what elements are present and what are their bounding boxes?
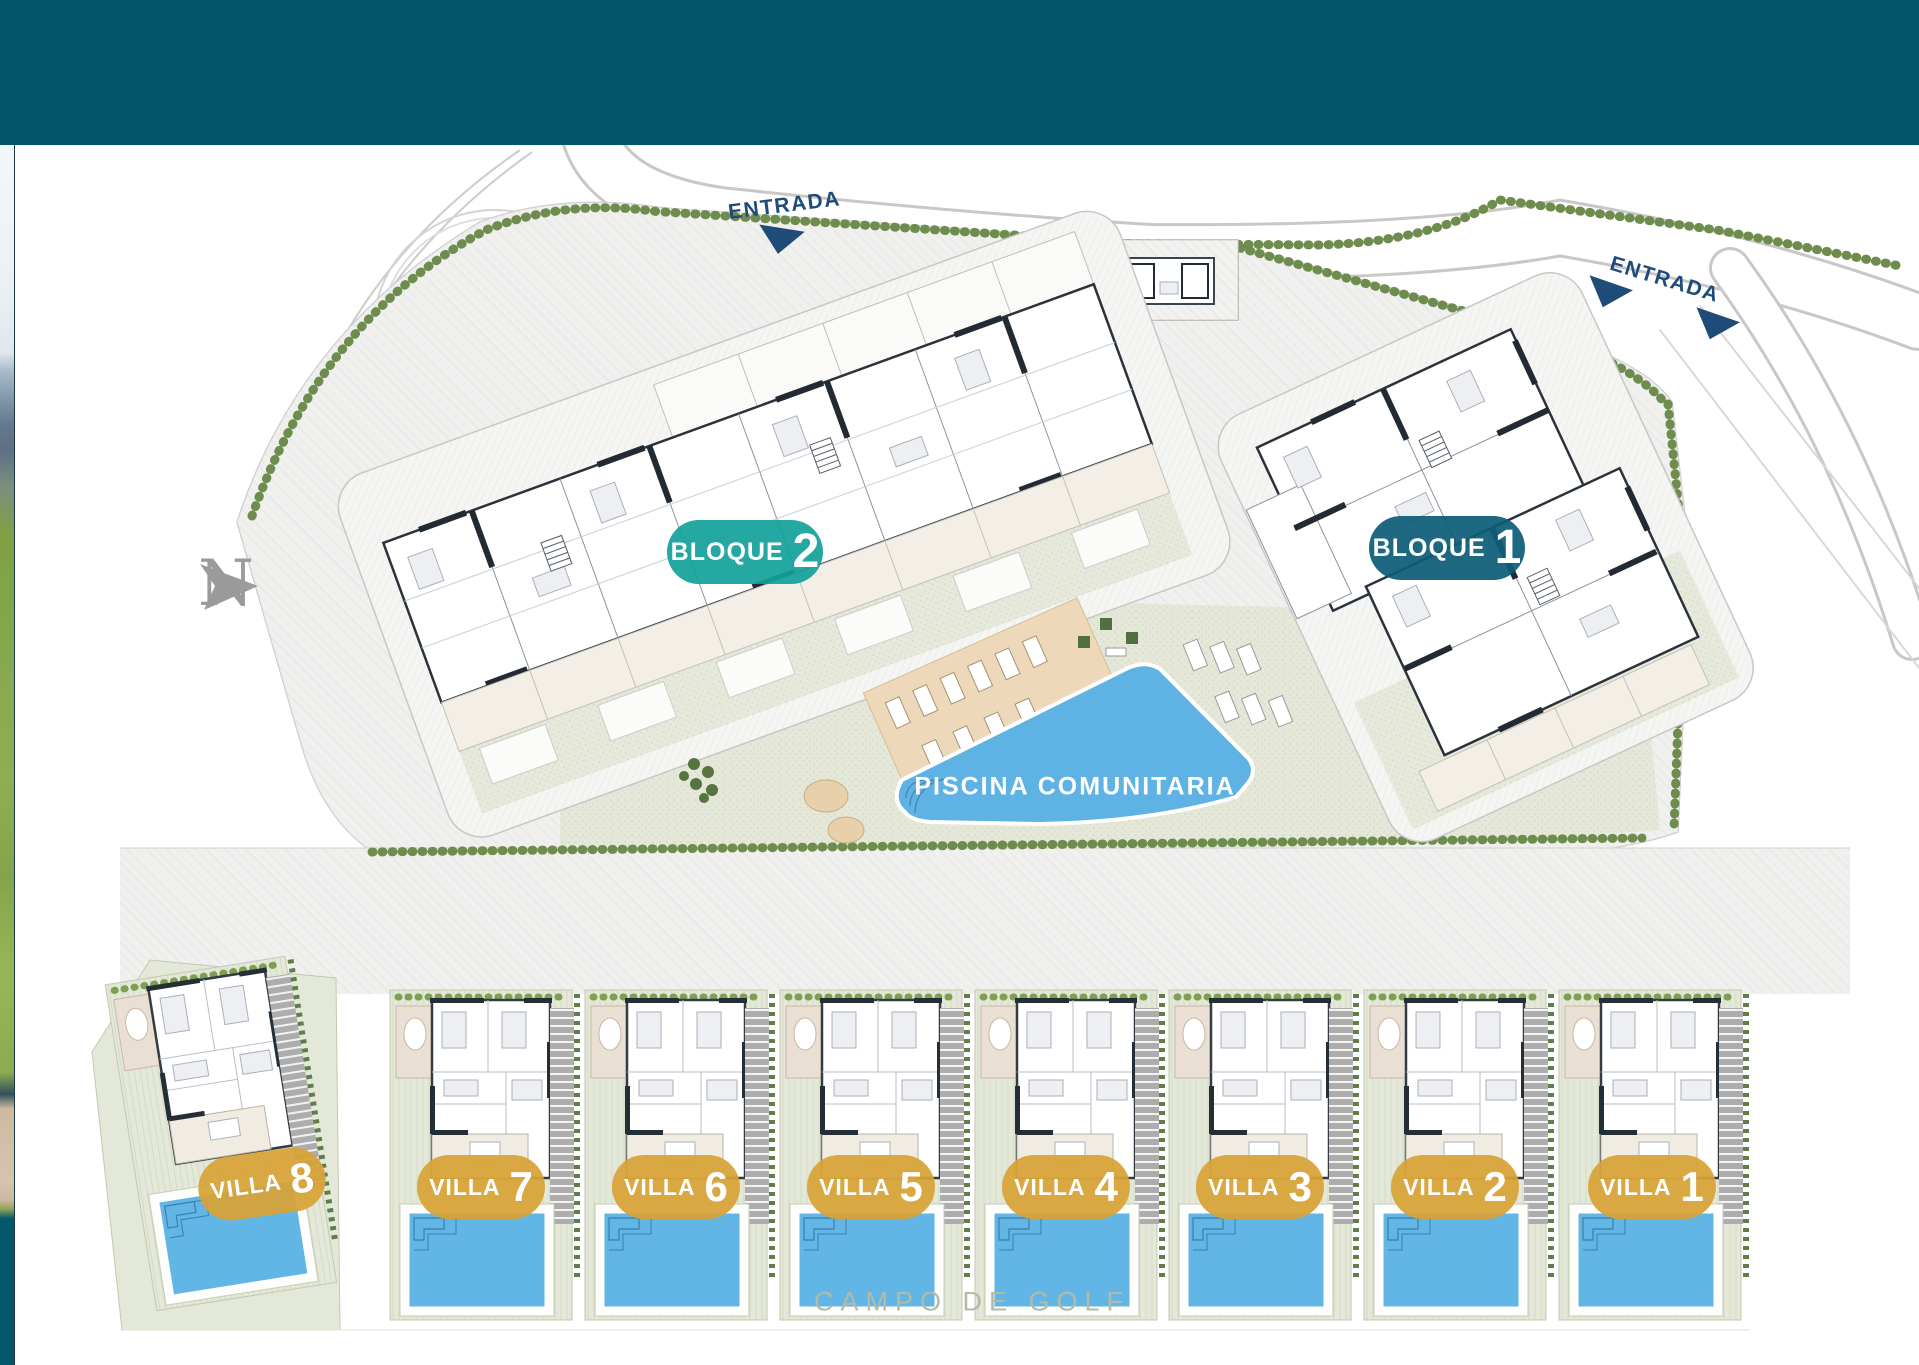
villa-1-label: VILLA xyxy=(1600,1174,1671,1201)
bloque-2-number: 2 xyxy=(793,528,820,576)
villa-5-label: VILLA xyxy=(819,1174,890,1201)
villa-6-badge[interactable]: VILLA 6 xyxy=(612,1155,740,1219)
villa-7-number: 7 xyxy=(510,1166,533,1208)
bloque-1-badge[interactable]: BLOQUE 1 xyxy=(1369,516,1525,580)
villa-3-badge[interactable]: VILLA 3 xyxy=(1196,1155,1324,1219)
villa-3-number: 3 xyxy=(1289,1166,1312,1208)
villa-8-number: 8 xyxy=(287,1156,316,1201)
villa-5-number: 5 xyxy=(900,1166,923,1208)
lower-corridor xyxy=(120,848,1850,994)
villa-7-label: VILLA xyxy=(429,1174,500,1201)
villa-4-number: 4 xyxy=(1095,1166,1118,1208)
communal-pool-label: PISCINA COMUNITARIA xyxy=(914,773,1235,802)
villa-8-label: VILLA xyxy=(209,1168,284,1205)
north-arrow-icon xyxy=(198,552,260,616)
bloque-1-label: BLOQUE xyxy=(1373,534,1486,563)
villa-4-label: VILLA xyxy=(1014,1174,1085,1201)
site-plan-page: ENTRADA ENTRADA N BLOQUE 2 BLOQUE 1 PISC… xyxy=(0,0,1919,1365)
golf-course-label: CAMPO DE GOLF xyxy=(814,1287,1130,1318)
villa-6-number: 6 xyxy=(705,1166,728,1208)
villa-6-label: VILLA xyxy=(624,1174,695,1201)
villa-7-badge[interactable]: VILLA 7 xyxy=(417,1155,545,1219)
villa-plots xyxy=(92,956,1746,1330)
villa-1-badge[interactable]: VILLA 1 xyxy=(1588,1155,1716,1219)
bloque-1-number: 1 xyxy=(1495,524,1522,572)
bottom-margin xyxy=(15,1330,1919,1365)
villa-2-number: 2 xyxy=(1484,1166,1507,1208)
villa-2-badge[interactable]: VILLA 2 xyxy=(1391,1155,1519,1219)
villa-5-badge[interactable]: VILLA 5 xyxy=(807,1155,935,1219)
north-compass: N xyxy=(198,552,254,616)
top-banner xyxy=(0,0,1919,145)
villa-4-badge[interactable]: VILLA 4 xyxy=(1002,1155,1130,1219)
villa-1-number: 1 xyxy=(1681,1166,1704,1208)
bloque-2-badge[interactable]: BLOQUE 2 xyxy=(667,520,823,584)
villa-2-label: VILLA xyxy=(1403,1174,1474,1201)
villa-3-label: VILLA xyxy=(1208,1174,1279,1201)
golf-photo-strip xyxy=(0,145,15,1365)
bloque-2-label: BLOQUE xyxy=(671,538,784,567)
